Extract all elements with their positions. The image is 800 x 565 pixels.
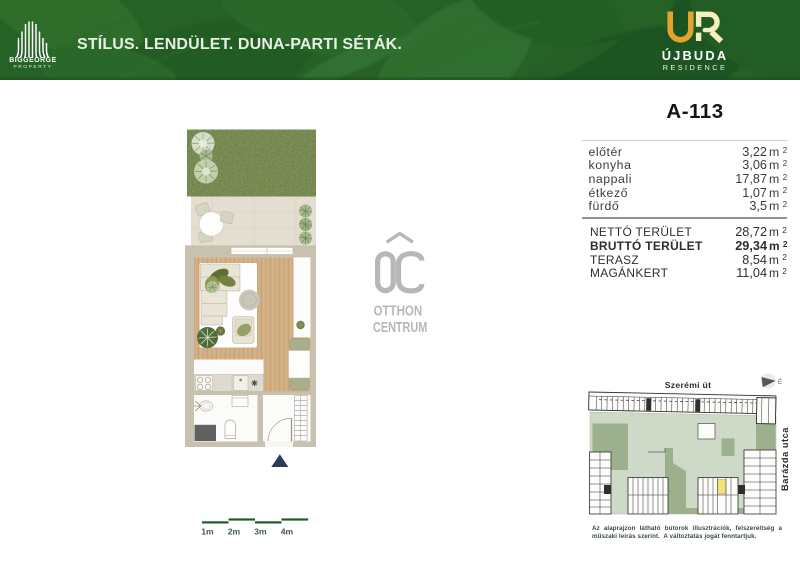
svg-text:CENTRUM: CENTRUM	[373, 318, 427, 335]
svg-text:3m: 3m	[254, 527, 267, 537]
svg-text:4m: 4m	[281, 527, 294, 537]
svg-text:É: É	[778, 379, 782, 386]
svg-text:2m: 2m	[228, 527, 241, 537]
svg-text:OTTHON: OTTHON	[374, 302, 423, 319]
svg-text:1m: 1m	[201, 527, 214, 537]
